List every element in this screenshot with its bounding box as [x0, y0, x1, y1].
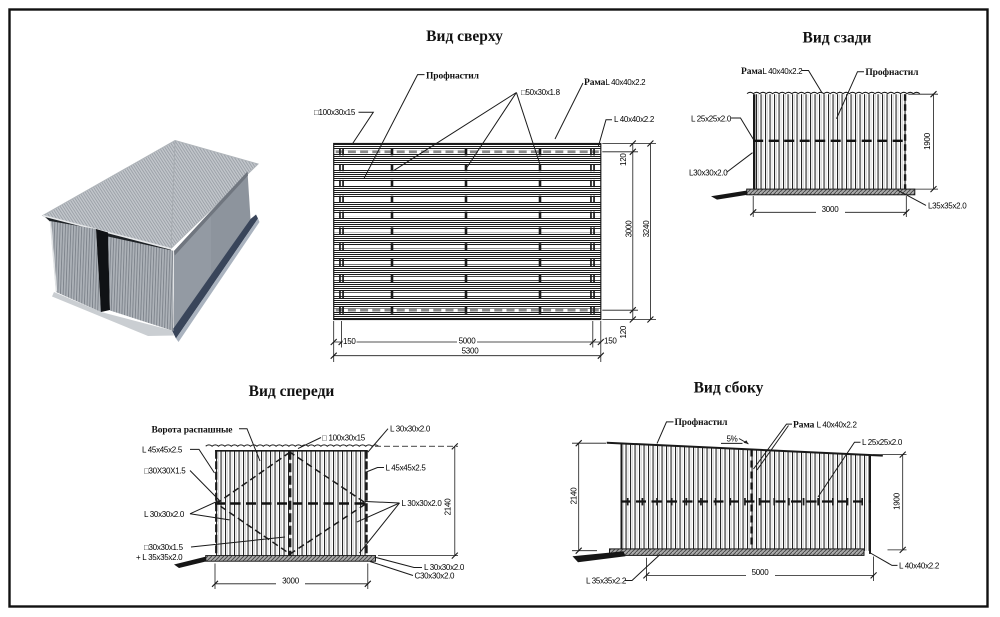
- svg-text:1900: 1900: [892, 492, 901, 510]
- svg-text:L 45x45x2.5: L 45x45x2.5: [386, 464, 427, 473]
- svg-text:Вид сзади: Вид сзади: [802, 30, 871, 47]
- svg-text:1900: 1900: [923, 132, 932, 150]
- svg-text:Профнастил: Профнастил: [675, 417, 729, 428]
- svg-text:РамаL 40x40x2.2: РамаL 40x40x2.2: [741, 67, 803, 77]
- svg-text:L 25x25x2.0: L 25x25x2.0: [862, 438, 903, 447]
- svg-text:5000: 5000: [459, 337, 477, 346]
- svg-text:5%: 5%: [727, 435, 738, 444]
- svg-text:3000: 3000: [822, 205, 840, 214]
- svg-text:150: 150: [604, 337, 617, 346]
- svg-text:L 30x30x2.0: L 30x30x2.0: [390, 425, 431, 434]
- svg-text:5300: 5300: [462, 347, 480, 356]
- svg-text:L 40x40x2.2: L 40x40x2.2: [899, 562, 940, 571]
- svg-text:L 30x30x2.0: L 30x30x2.0: [144, 510, 185, 519]
- svg-text:Профнастил: Профнастил: [426, 71, 480, 82]
- svg-text:□ 100x30x15: □ 100x30x15: [322, 434, 366, 443]
- svg-text:□100x30x15: □100x30x15: [314, 108, 356, 117]
- svg-text:3000: 3000: [625, 220, 634, 238]
- svg-text:РамаL 40x40x2.2: РамаL 40x40x2.2: [584, 78, 646, 88]
- svg-text:3240: 3240: [642, 220, 651, 238]
- svg-text:L35x35x2.0: L35x35x2.0: [928, 202, 967, 211]
- svg-text:L 45x45x2.5: L 45x45x2.5: [142, 446, 183, 455]
- svg-text:Рама L 40x40x2.2: Рама L 40x40x2.2: [793, 421, 857, 431]
- svg-text:150: 150: [343, 337, 356, 346]
- svg-text:Вид сверху: Вид сверху: [426, 28, 503, 45]
- svg-text:5000: 5000: [752, 568, 770, 577]
- svg-text:Вид спереди: Вид спереди: [249, 383, 335, 400]
- svg-text:L 40x40x2.2: L 40x40x2.2: [614, 115, 655, 124]
- svg-text:□30x30x1.5: □30x30x1.5: [144, 543, 184, 552]
- svg-text:120: 120: [619, 153, 628, 166]
- svg-text:С30x30x2.0: С30x30x2.0: [415, 572, 456, 581]
- svg-text:□30X30X1.5: □30X30X1.5: [144, 467, 186, 476]
- svg-text:2140: 2140: [444, 498, 453, 516]
- svg-text:2140: 2140: [570, 487, 579, 505]
- svg-text:L 25x25x2.0: L 25x25x2.0: [691, 115, 732, 124]
- svg-text:Вид сбоку: Вид сбоку: [694, 380, 764, 397]
- svg-text:L30x30x2.0: L30x30x2.0: [689, 169, 728, 178]
- svg-text:Ворота распашные: Ворота распашные: [152, 426, 233, 436]
- svg-text:120: 120: [619, 325, 628, 338]
- svg-text:L 35x35x2.2: L 35x35x2.2: [586, 577, 627, 586]
- svg-text:3000: 3000: [282, 576, 300, 585]
- svg-text:+ L 35x35x2.0: + L 35x35x2.0: [136, 553, 183, 562]
- svg-text:□50x30x1.8: □50x30x1.8: [521, 88, 561, 97]
- svg-text:Профнастил: Профнастил: [865, 67, 919, 78]
- svg-text:L 30x30x2.0: L 30x30x2.0: [402, 499, 443, 508]
